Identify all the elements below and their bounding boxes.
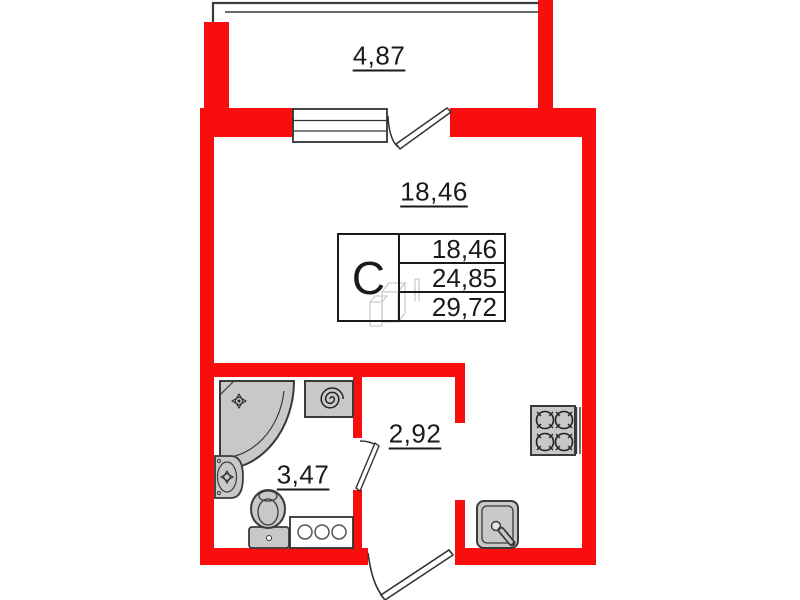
unit-type-letter: С xyxy=(339,235,400,320)
living-area-value: 18,46 xyxy=(400,235,504,262)
stove-icon xyxy=(531,406,580,455)
total-area-value: 29,72 xyxy=(400,291,504,320)
window-icon xyxy=(293,109,387,142)
floor-plan: 4,87 18,46 3,47 2,92 С 18,46 24,85 29,72 xyxy=(0,0,800,600)
balcony-door-icon xyxy=(388,108,451,149)
kitchen-sink-icon xyxy=(477,501,518,548)
room-area-label: 18,46 xyxy=(400,177,468,208)
hallway-area-label: 2,92 xyxy=(389,419,442,450)
bathroom-cabinet-icon xyxy=(290,517,353,548)
toilet-icon xyxy=(249,490,289,548)
unit-areas-table: 18,46 24,85 29,72 xyxy=(400,235,504,320)
bathroom-sink-icon xyxy=(215,456,243,498)
balcony-area-label: 4,87 xyxy=(353,41,406,72)
bathroom-door-icon xyxy=(356,441,379,491)
apartment-area-value: 24,85 xyxy=(400,262,504,291)
entrance-door-icon xyxy=(368,550,453,600)
bathroom-area-label: 3,47 xyxy=(277,460,330,491)
unit-info-stamp: С 18,46 24,85 29,72 xyxy=(337,233,506,322)
balcony-parapet xyxy=(213,3,539,22)
washing-machine-icon xyxy=(305,381,353,417)
